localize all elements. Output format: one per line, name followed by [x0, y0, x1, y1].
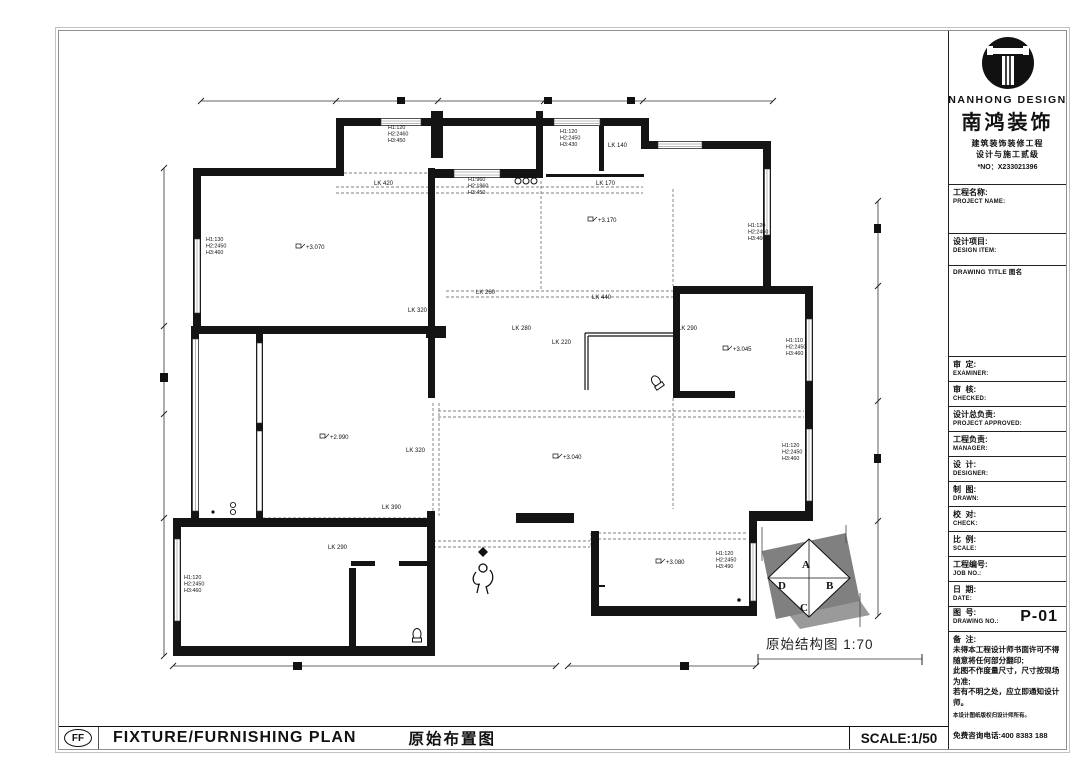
plan-label: H1:120H2:2450H3:490 — [716, 551, 736, 570]
plan-label: LK 320 — [408, 308, 428, 314]
plan-label: C — [800, 602, 808, 614]
company-name-en: NANHONG DESIGN — [948, 94, 1066, 106]
entrance-figure-icon — [473, 547, 493, 594]
plan-label: +3.170 — [598, 218, 617, 224]
plan-label: LK 260 — [476, 290, 496, 296]
drawing-title-box: DRAWING TITLE 图名 — [949, 266, 1066, 357]
cert-line-2: 设计与施工贰级 — [976, 149, 1039, 160]
cert-no: *NO：X233021396 — [978, 162, 1038, 172]
drawing-no-box: 图 号: DRAWING NO.: P-01 — [949, 605, 1066, 632]
plan-label: B — [826, 580, 834, 592]
drawing-sheet: LK 420LK 170LK 140LK 260LK 440LK 280LK 2… — [58, 30, 1067, 750]
note-line: 此图不作度量尺寸，尺寸按现场 — [953, 666, 1062, 677]
plan-label: H1:120H2:2460H3:450 — [388, 125, 408, 144]
field-row-5: 制 图:DRAWN: — [949, 482, 1066, 507]
project-name-label-zh: 工程名称: — [953, 187, 1062, 198]
plan-label: +2.990 — [330, 435, 349, 441]
dashed-lines-layer — [263, 173, 804, 547]
plan-label: H1:110H2:2450H3:460 — [786, 338, 806, 357]
footer-divider — [98, 727, 99, 749]
plan-label: D — [778, 580, 786, 592]
field-row-0: 审 定:EXAMINER: — [949, 357, 1066, 382]
hotline: 免费咨询电话:400 8383 188 — [953, 730, 1062, 741]
notes-box: 备 注: 未得本工程设计师书面许可不得随意将任何部分翻印;此图不作度量尺寸，尺寸… — [949, 632, 1066, 749]
floor-plan: LK 420LK 170LK 140LK 260LK 440LK 280LK 2… — [156, 81, 946, 681]
plan-label: LK 440 — [592, 295, 612, 301]
note-line: 未得本工程设计师书面许可不得 — [953, 645, 1062, 656]
level-marker-icon — [588, 217, 597, 221]
drawing-title-label: DRAWING TITLE 图名 — [953, 268, 1062, 277]
footer-title-en: FIXTURE/FURNISHING PLAN — [113, 729, 356, 747]
plan-label: +3.045 — [733, 347, 752, 353]
fixtures-layer — [211, 178, 740, 642]
windows-layer — [175, 119, 813, 622]
plan-label: H1:130H2:2450H3:460 — [206, 237, 226, 256]
field-row-4: 设 计:DESIGNER: — [949, 457, 1066, 482]
field-row-1: 审 核:CHECKED: — [949, 382, 1066, 407]
basin-icon — [230, 509, 235, 514]
footer-scale: SCALE:1/50 — [849, 727, 948, 749]
toilet-icon — [413, 629, 422, 643]
note-line: 随意将任何部分翻印; — [953, 656, 1062, 667]
design-item-label-en: DESIGN ITEM: — [953, 247, 1062, 256]
field-row-9: 日 期:DATE: — [949, 582, 1066, 607]
note-line: 师。 — [953, 698, 1062, 709]
plan-label: H1:120H2:2450H3:460 — [184, 575, 204, 594]
plan-label: LK 290 — [328, 545, 348, 551]
cert-line-1: 建筑装饰装修工程 — [972, 138, 1044, 149]
title-block: NANHONG DESIGN 南鸿装饰 建筑装饰装修工程 设计与施工贰级 *NO… — [948, 31, 1066, 749]
plan-label: LK 280 — [512, 326, 532, 332]
plan-label: LK 170 — [596, 181, 616, 187]
page: LK 420LK 170LK 140LK 260LK 440LK 280LK 2… — [0, 0, 1080, 764]
basin-icon — [230, 502, 235, 507]
field-rows: 审 定:EXAMINER:审 核:CHECKED:设计总负责:PROJECT A… — [949, 357, 1066, 605]
logo-box: NANHONG DESIGN 南鸿装饰 建筑装饰装修工程 设计与施工贰级 *NO… — [949, 31, 1066, 185]
level-marker-icon — [553, 454, 562, 458]
plan-label: H1:120H2:2450H3:430 — [560, 129, 580, 148]
plan-label: LK 420 — [374, 181, 394, 187]
field-row-6: 校 对:CHECK: — [949, 507, 1066, 532]
level-marker-icon — [723, 346, 732, 350]
toilet-icon — [649, 374, 664, 390]
project-name-box: 工程名称: PROJECT NAME: — [949, 185, 1066, 234]
plan-label: H1:960H2:1860H3:450 — [468, 177, 488, 196]
plan-label: +3.080 — [666, 560, 685, 566]
plan-label: LK 320 — [406, 448, 426, 454]
field-row-2: 设计总负责:PROJECT APPROVED: — [949, 407, 1066, 432]
level-marker-icon — [296, 244, 305, 248]
company-name-zh: 南鸿装饰 — [962, 106, 1054, 135]
plan-label: LK 140 — [608, 143, 628, 149]
drawing-no-value: P-01 — [1020, 608, 1058, 626]
notes-lines: 未得本工程设计师书面许可不得随意将任何部分翻印;此图不作度量尺寸，尺寸按现场为准… — [953, 645, 1062, 708]
level-marker-icon — [656, 559, 665, 563]
field-row-7: 比 例:SCALE: — [949, 532, 1066, 557]
field-row-3: 工程负责:MANAGER: — [949, 432, 1066, 457]
plan-label: LK 290 — [678, 326, 698, 332]
stove-burners-icon — [515, 178, 537, 184]
design-item-label-zh: 设计项目: — [953, 236, 1062, 247]
level-marker-icon — [320, 434, 329, 438]
plan-label: LK 390 — [382, 505, 402, 511]
footer-title-zh: 原始布置图 — [408, 727, 496, 749]
note-line: 若有不明之处，应立即通知设计 — [953, 687, 1062, 698]
plan-label: A — [802, 559, 810, 571]
footer-bar: FF FIXTURE/FURNISHING PLAN 原始布置图 SCALE:1… — [59, 726, 948, 749]
notes-title: 备 注: — [953, 634, 1062, 645]
project-name-label-en: PROJECT NAME: — [953, 198, 1062, 207]
plan-label: 原始结构图 1:70 — [766, 637, 874, 652]
plan-label: H1:120H2:2450H3:460 — [782, 443, 802, 462]
plan-label: H1:120H2:2450H3:460 — [748, 223, 768, 242]
design-item-box: 设计项目: DESIGN ITEM: — [949, 234, 1066, 266]
field-row-8: 工程编号:JOB NO.: — [949, 557, 1066, 582]
notes-fine-print: 本设计图纸版权归设计师所有。 — [953, 711, 1062, 719]
sheet-code-badge: FF — [64, 729, 92, 747]
elevation-compass — [762, 525, 870, 629]
plan-label: LK 220 — [552, 340, 572, 346]
plan-label: +3.070 — [306, 245, 325, 251]
note-line: 为准; — [953, 677, 1062, 688]
nanhong-logo-icon — [979, 35, 1037, 93]
plan-label: +3.040 — [563, 455, 582, 461]
